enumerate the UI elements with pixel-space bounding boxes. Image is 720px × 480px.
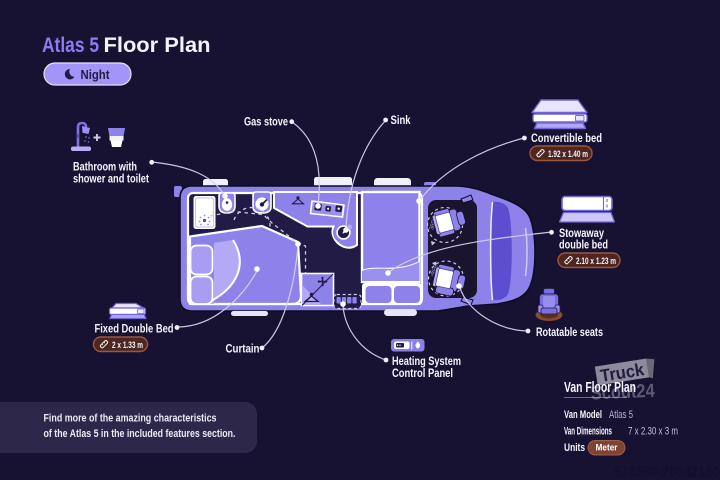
svg-text:Sink: Sink — [391, 115, 411, 127]
svg-text:Control Panel: Control Panel — [392, 366, 453, 380]
svg-text:Gas stove: Gas stove — [244, 117, 288, 129]
svg-text:1.92 x 1.40 m: 1.92 x 1.40 m — [548, 149, 588, 159]
svg-text:Meter: Meter — [596, 443, 618, 453]
svg-text:Night: Night — [81, 68, 111, 82]
svg-text:2 x 1.33 m: 2 x 1.33 m — [112, 340, 143, 350]
svg-text:Units: Units — [564, 442, 585, 454]
svg-text:573580-20842160: 573580-20842160 — [614, 464, 720, 480]
svg-text:Van Dimensions: Van Dimensions — [564, 426, 612, 438]
svg-text:Van Model: Van Model — [564, 409, 602, 421]
svg-text:Van Floor Plan: Van Floor Plan — [564, 380, 636, 396]
svg-text:Convertible bed: Convertible bed — [531, 131, 602, 145]
svg-text:Atlas 5Floor Plan: Atlas 5Floor Plan — [42, 34, 211, 57]
svg-text:Fixed Double Bed: Fixed Double Bed — [95, 322, 174, 336]
svg-text:Rotatable seats: Rotatable seats — [536, 325, 603, 339]
svg-text:double bed: double bed — [559, 238, 608, 252]
svg-text:Find more of the amazing chara: Find more of the amazing characteristics — [44, 413, 217, 425]
svg-text:2.10 x 1.23 m: 2.10 x 1.23 m — [576, 256, 616, 266]
svg-text:shower and toilet: shower and toilet — [73, 172, 149, 186]
svg-text:Curtain: Curtain — [226, 342, 260, 356]
svg-text:of the Atlas 5 in the included: of the Atlas 5 in the included features … — [44, 428, 236, 440]
svg-text:7 x 2.30 x 3 m: 7 x 2.30 x 3 m — [628, 426, 678, 438]
svg-text:Atlas 5: Atlas 5 — [609, 409, 633, 421]
